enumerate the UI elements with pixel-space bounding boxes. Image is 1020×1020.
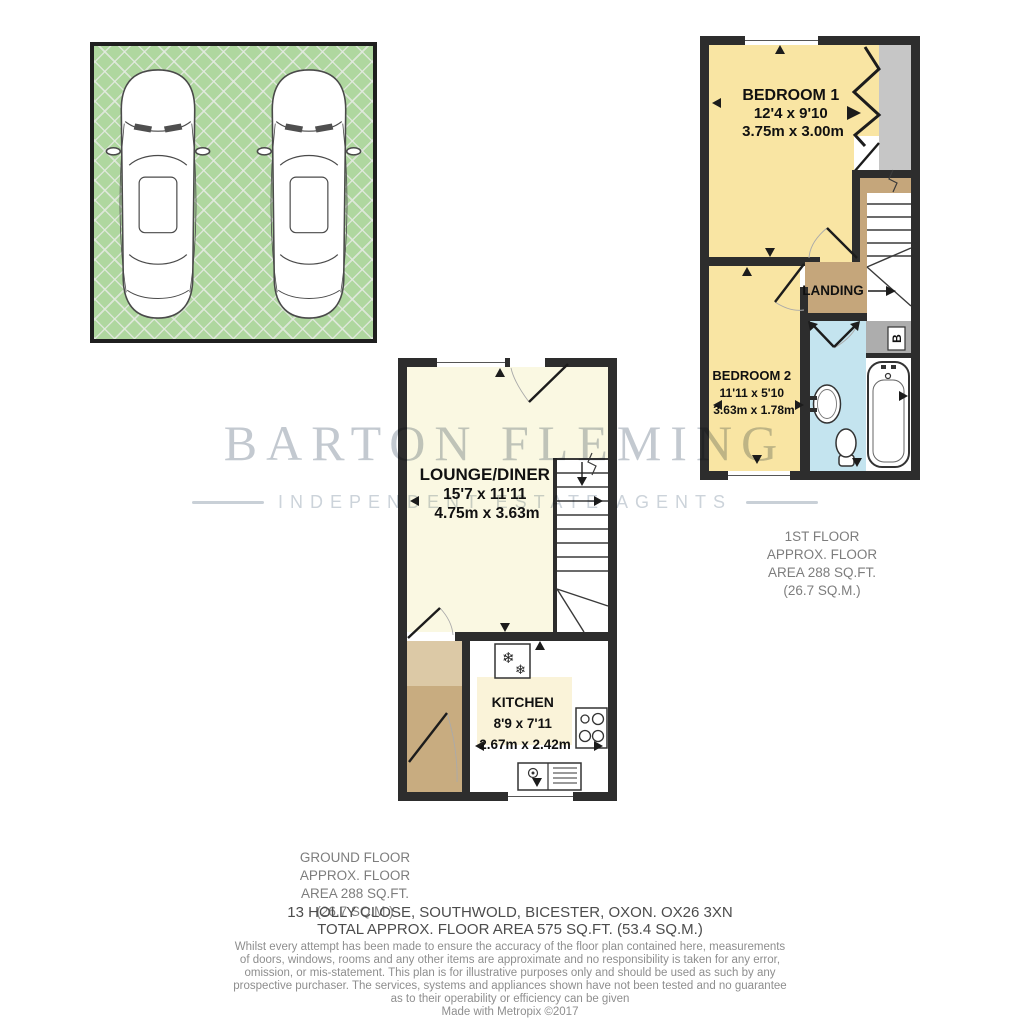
boiler-label: B xyxy=(890,334,904,343)
kitchen-sink-icon xyxy=(518,763,581,790)
floorplan-page: B xyxy=(0,0,1020,1020)
metropix-credit: Made with Metropix ©2017 xyxy=(0,1006,1020,1019)
fridge-icon: ❄ ❄ xyxy=(495,644,530,678)
first-floor-plan: B xyxy=(700,36,920,480)
disclaimer: Whilst every attempt has been made to en… xyxy=(0,941,1020,1019)
wall xyxy=(800,313,867,321)
car-mirror-icon xyxy=(106,148,120,155)
wall xyxy=(800,321,810,471)
window-icon xyxy=(508,792,573,801)
wall xyxy=(852,170,860,266)
hob-icon xyxy=(576,708,607,748)
wardrobe xyxy=(879,45,911,172)
car-icon xyxy=(256,60,362,326)
ground-floor-plan: ❄ ❄ xyxy=(398,358,617,801)
total-floor-area: TOTAL APPROX. FLOOR AREA 575 SQ.FT. (53.… xyxy=(0,922,1020,939)
toilet-icon xyxy=(836,429,856,466)
property-address-block: 13 HOLLY CLOSE, SOUTHWOLD, BICESTER, OXO… xyxy=(0,905,1020,938)
svg-text:❄: ❄ xyxy=(515,662,526,677)
landing-floor xyxy=(860,178,911,193)
car-icon xyxy=(105,60,211,326)
bedroom2-label: BEDROOM 2 11'11 x 5'10 3.63m x 1.78m xyxy=(712,367,795,417)
wall xyxy=(866,353,911,358)
kitchen-floor xyxy=(477,677,572,745)
first-floor-caption: 1ST FLOOR APPROX. FLOOR AREA 288 SQ.FT. … xyxy=(732,528,912,600)
wall xyxy=(854,170,911,178)
bath-icon xyxy=(868,362,909,467)
parking-plot xyxy=(90,42,377,343)
bedroom1-label: BEDROOM 1 12'4 x 9'10 3.75m x 3.00m xyxy=(742,87,844,140)
wall xyxy=(462,641,470,792)
car-mirror-icon xyxy=(196,148,210,155)
wall xyxy=(455,632,608,641)
window-icon xyxy=(437,358,505,367)
landing-label: LANDING xyxy=(802,283,864,298)
property-address: 13 HOLLY CLOSE, SOUTHWOLD, BICESTER, OXO… xyxy=(0,905,1020,922)
tagline-rule xyxy=(192,501,264,504)
svg-text:❄: ❄ xyxy=(502,650,515,667)
tagline-rule xyxy=(746,501,818,504)
